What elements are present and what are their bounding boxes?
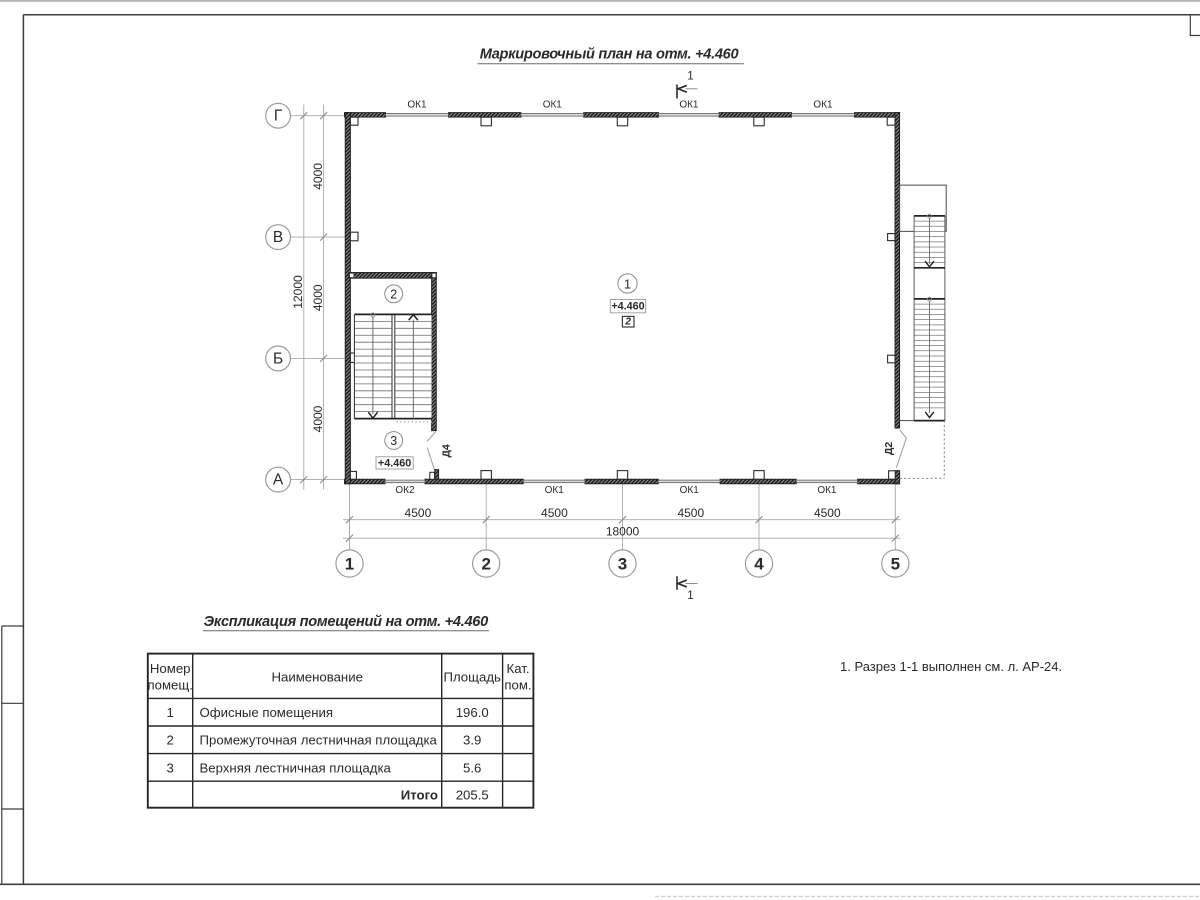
- svg-text:4500: 4500: [814, 506, 841, 520]
- svg-text:+4.460: +4.460: [611, 301, 644, 313]
- svg-text:1: 1: [624, 277, 631, 292]
- svg-text:1: 1: [687, 70, 693, 82]
- svg-text:ОК1: ОК1: [545, 485, 565, 496]
- svg-text:Промежуточная лестничная площа: Промежуточная лестничная площадка: [200, 733, 438, 748]
- svg-text:4500: 4500: [677, 506, 704, 520]
- svg-text:3.9: 3.9: [463, 733, 481, 748]
- svg-text:помещ.: помещ.: [148, 677, 193, 692]
- svg-text:ОК2: ОК2: [395, 485, 415, 496]
- svg-text:205.5: 205.5: [456, 787, 489, 802]
- svg-text:ОК1: ОК1: [813, 100, 833, 111]
- svg-text:196.0: 196.0: [456, 705, 489, 720]
- svg-text:12000: 12000: [291, 275, 305, 309]
- svg-text:пом.: пом.: [504, 677, 531, 692]
- svg-text:3: 3: [618, 555, 627, 574]
- svg-text:Экспликация помещений на отм.: Экспликация помещений на отм. +4.460: [204, 614, 488, 630]
- svg-text:Площадь: Площадь: [443, 669, 501, 684]
- svg-text:Кат.: Кат.: [507, 661, 530, 676]
- svg-text:Маркировочный план на отм. +4.: Маркировочный план на отм. +4.460: [480, 47, 739, 63]
- svg-text:4000: 4000: [311, 163, 325, 190]
- svg-text:Номер: Номер: [150, 661, 191, 676]
- svg-text:1. Разрез 1-1 выполнен см. л.: 1. Разрез 1-1 выполнен см. л. АР-24.: [840, 659, 1062, 674]
- svg-text:Г: Г: [274, 108, 283, 125]
- svg-text:Наименование: Наименование: [271, 669, 362, 684]
- svg-text:4000: 4000: [311, 284, 325, 311]
- svg-text:4500: 4500: [405, 506, 432, 520]
- svg-text:Верхняя лестничная площадка: Верхняя лестничная площадка: [200, 760, 392, 775]
- svg-text:Офисные помещения: Офисные помещения: [200, 705, 334, 720]
- svg-text:18000: 18000: [606, 525, 640, 539]
- svg-text:Б: Б: [273, 350, 283, 367]
- svg-text:А: А: [273, 472, 284, 489]
- svg-text:+4.460: +4.460: [378, 457, 411, 469]
- svg-text:Д4: Д4: [441, 444, 453, 457]
- svg-text:3: 3: [390, 434, 397, 448]
- svg-text:Итого: Итого: [401, 787, 438, 802]
- svg-text:4: 4: [754, 555, 764, 574]
- svg-text:Д2: Д2: [883, 442, 895, 455]
- svg-text:1: 1: [167, 705, 174, 720]
- svg-text:2: 2: [481, 555, 490, 574]
- svg-text:ОК1: ОК1: [543, 100, 563, 111]
- svg-text:2: 2: [167, 733, 174, 748]
- svg-text:ОК1: ОК1: [407, 100, 427, 111]
- svg-text:5: 5: [891, 555, 900, 574]
- svg-text:1: 1: [345, 555, 354, 574]
- svg-text:5.6: 5.6: [463, 760, 481, 775]
- svg-text:4000: 4000: [311, 405, 325, 432]
- svg-text:3: 3: [167, 760, 174, 775]
- svg-text:4500: 4500: [541, 506, 568, 520]
- svg-text:ОК1: ОК1: [679, 100, 699, 111]
- svg-text:ОК1: ОК1: [817, 485, 837, 496]
- svg-text:1: 1: [687, 590, 693, 602]
- svg-text:В: В: [273, 229, 283, 246]
- svg-text:2: 2: [390, 288, 397, 302]
- svg-text:2: 2: [624, 317, 631, 328]
- svg-text:ОК1: ОК1: [680, 485, 700, 496]
